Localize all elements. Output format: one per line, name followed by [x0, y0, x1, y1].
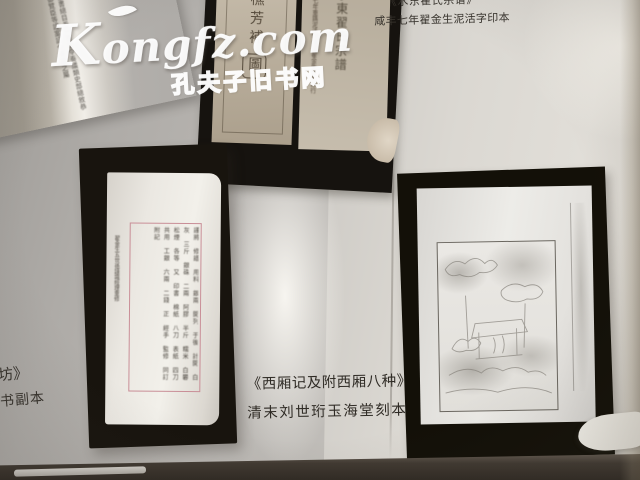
kongfz-chinese-name: 孔夫子旧书网: [170, 58, 328, 100]
kongfz-watermark: Kongfz.com 孔夫子旧书网: [49, 0, 364, 118]
book-spread-photo: 欽定四庫全書總目卷一百詔令奏議類史部總敘恭校上進呈御覽臣等謹案詔令奏議之屬 樵芳…: [0, 0, 640, 480]
